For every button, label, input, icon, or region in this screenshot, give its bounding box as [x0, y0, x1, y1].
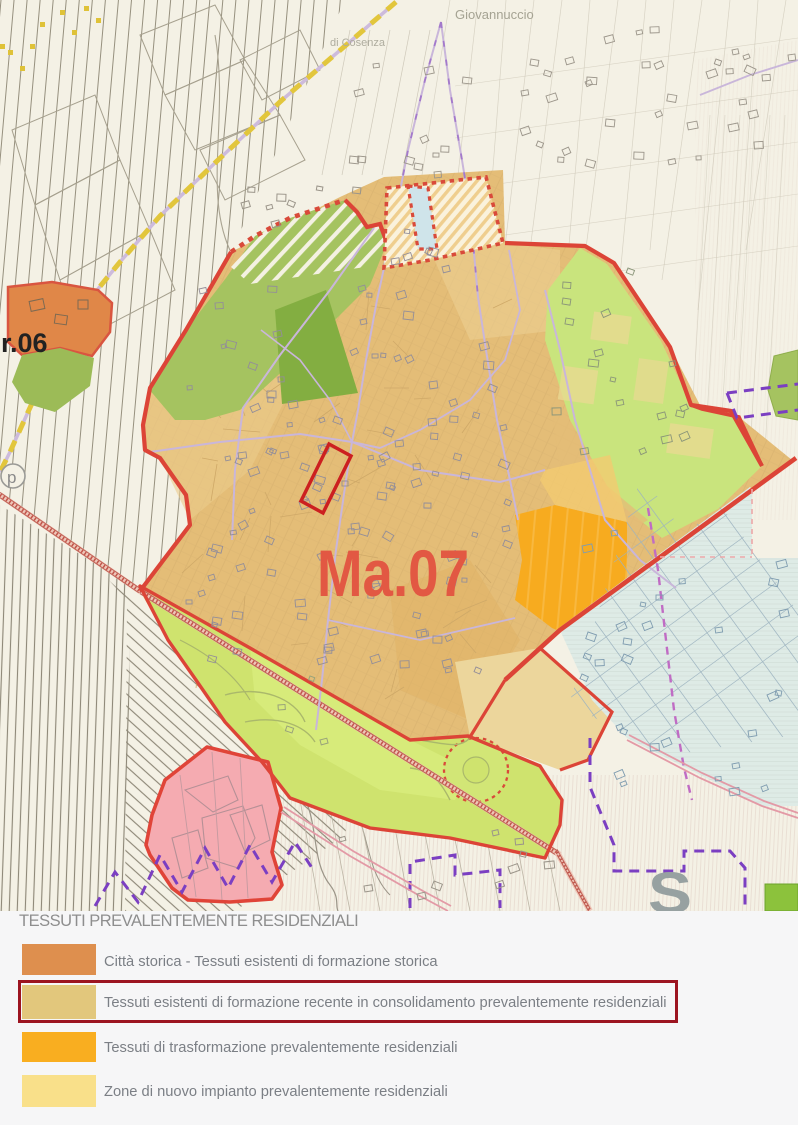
svg-text:Ma.07: Ma.07 — [317, 536, 469, 610]
svg-text:S: S — [648, 861, 692, 911]
svg-text:Giovannuccio: Giovannuccio — [455, 7, 534, 22]
svg-text:p: p — [7, 468, 16, 487]
svg-text:di Cosenza: di Cosenza — [330, 37, 386, 49]
svg-text:r.06: r.06 — [1, 328, 48, 358]
